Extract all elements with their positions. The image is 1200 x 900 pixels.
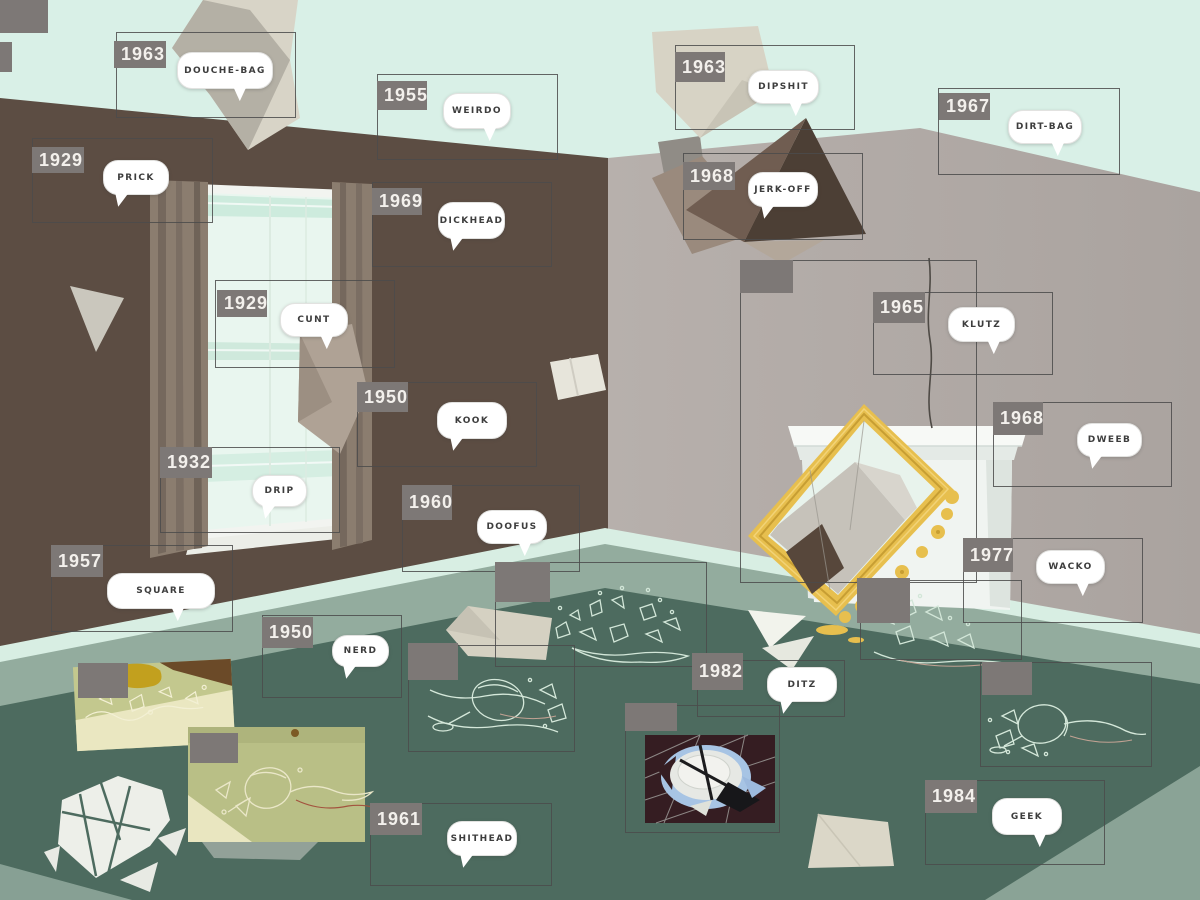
word-bubble-wacko: WACKO [1036, 550, 1105, 584]
year-tab-dweeb[interactable]: 1968 [993, 402, 1043, 435]
year-tab-shithead[interactable]: 1961 [370, 803, 422, 835]
word-bubble-weirdo: WEIRDO [443, 93, 511, 129]
word-bubble-douche-bag: DOUCHE-BAG [177, 52, 273, 89]
year-tab-weirdo[interactable]: 1955 [377, 81, 427, 110]
year-tab-prick[interactable]: 1929 [32, 147, 84, 173]
hotspot-tab-unlabeled-3[interactable] [408, 643, 458, 680]
hotspot-tab-unlabeled-7[interactable] [78, 663, 128, 698]
insult-history-room: 1963DOUCHE-BAG1955WEIRDO1963DIPSHIT1967D… [0, 0, 1200, 900]
word-bubble-klutz: KLUTZ [948, 307, 1015, 342]
year-tab-geek[interactable]: 1984 [925, 780, 977, 813]
hotspot-layer: 1963DOUCHE-BAG1955WEIRDO1963DIPSHIT1967D… [0, 0, 1200, 900]
word-bubble-dickhead: DICKHEAD [438, 202, 505, 239]
word-bubble-dirt-bag: DIRT-BAG [1008, 110, 1082, 144]
year-tab-cunt[interactable]: 1929 [217, 290, 267, 317]
year-tab-dipshit[interactable]: 1963 [675, 52, 725, 82]
hotspot-tab-unlabeled-6[interactable] [857, 578, 910, 623]
word-bubble-geek: GEEK [992, 798, 1062, 835]
word-bubble-drip: DRIP [252, 475, 307, 507]
word-bubble-nerd: NERD [332, 635, 389, 667]
word-bubble-prick: PRICK [103, 160, 169, 195]
hotspot-tab-unlabeled-9[interactable] [0, 0, 48, 33]
year-tab-nerd[interactable]: 1950 [262, 617, 313, 648]
hotspot-tab-unlabeled-1[interactable] [740, 260, 793, 293]
year-tab-douche-bag[interactable]: 1963 [114, 41, 166, 68]
word-bubble-square: SQUARE [107, 573, 215, 609]
hotspot-tab-unlabeled-10[interactable] [0, 42, 12, 72]
year-tab-dirt-bag[interactable]: 1967 [939, 93, 990, 120]
year-tab-klutz[interactable]: 1965 [873, 292, 925, 323]
word-bubble-jerk-off: JERK-OFF [748, 172, 818, 207]
hotspot-region-unlabeled-1[interactable] [740, 260, 977, 583]
hotspot-tab-unlabeled-5[interactable] [982, 662, 1032, 695]
year-tab-square[interactable]: 1957 [51, 545, 103, 577]
year-tab-drip[interactable]: 1932 [160, 447, 212, 478]
word-bubble-shithead: SHITHEAD [447, 821, 517, 856]
year-tab-dickhead[interactable]: 1969 [372, 188, 422, 215]
hotspot-tab-unlabeled-2[interactable] [495, 562, 550, 602]
year-tab-wacko[interactable]: 1977 [963, 538, 1013, 572]
year-tab-kook[interactable]: 1950 [357, 382, 408, 412]
year-tab-jerk-off[interactable]: 1968 [683, 162, 735, 190]
word-bubble-cunt: CUNT [280, 303, 348, 337]
word-bubble-ditz: DITZ [767, 667, 837, 702]
word-bubble-doofus: DOOFUS [477, 510, 547, 544]
word-bubble-dweeb: DWEEB [1077, 423, 1142, 457]
year-tab-doofus[interactable]: 1960 [402, 485, 452, 520]
word-bubble-dipshit: DIPSHIT [748, 70, 819, 104]
hotspot-tab-unlabeled-4[interactable] [625, 703, 677, 731]
hotspot-tab-unlabeled-8[interactable] [190, 733, 238, 763]
year-tab-ditz[interactable]: 1982 [692, 653, 743, 690]
word-bubble-kook: KOOK [437, 402, 507, 439]
